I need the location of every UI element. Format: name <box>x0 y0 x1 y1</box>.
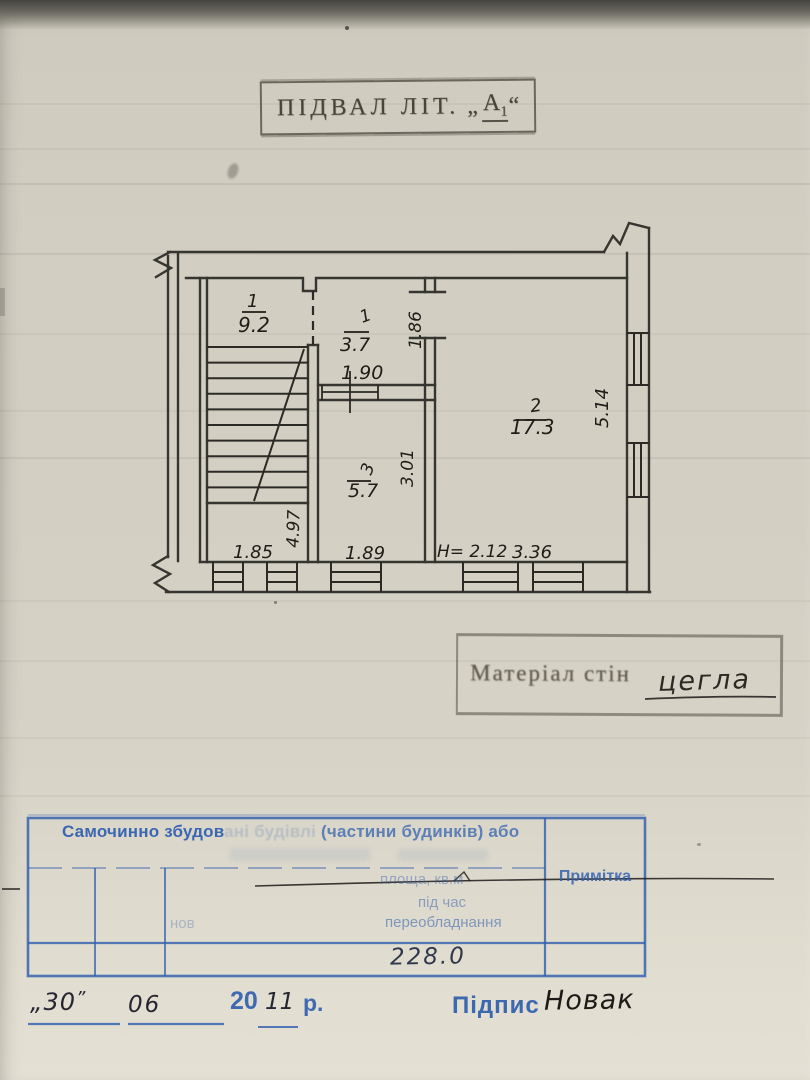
span-mark: „ <box>30 988 43 1016</box>
sub-mark: 1 <box>500 103 507 119</box>
span-mark: (частини будинків) або <box>321 822 519 841</box>
window-symbol <box>627 443 649 497</box>
scanned-document-page: ПІДВАЛ ЛІТ.„А1“ <box>0 0 810 1080</box>
span-mark: 30 <box>43 988 76 1016</box>
pen-marks <box>2 697 776 889</box>
room2-area: 17.3 <box>510 415 555 439</box>
table-col-new-label: нов <box>170 915 195 932</box>
room1a-area: 3.7 <box>340 334 370 356</box>
table-header: Самочинно збудовані будівлі (частини буд… <box>62 822 542 842</box>
date-day: „30” <box>30 988 86 1016</box>
break-symbol-bottom-left <box>153 556 170 592</box>
window-symbol <box>463 562 518 592</box>
room1a-number: 1 <box>357 305 374 327</box>
date-underlines <box>28 1024 298 1027</box>
room1-area: 9.2 <box>238 313 270 337</box>
date-year-prefix: 20 <box>230 987 258 1016</box>
table-col-note-label: Примітка <box>548 868 642 886</box>
room3-area: 5.7 <box>348 480 378 502</box>
dim-4-97: 4.97 <box>283 509 304 548</box>
table-col-area-label: площа, кв.м <box>380 871 463 888</box>
signature-name: Новак <box>544 984 635 1017</box>
path-mark <box>425 278 435 562</box>
date-year-handwritten: 11 <box>265 989 294 1015</box>
dim-1-85: 1.85 <box>233 542 273 563</box>
date-year-suffix: р. <box>303 990 323 1017</box>
dim-1-86: 1.86 <box>406 311 426 349</box>
pen-strikethrough-line <box>255 878 774 886</box>
dim-1-90: 1.90 <box>341 362 383 384</box>
span-mark: Самочинно збудов <box>62 822 224 841</box>
material-stamp: Матеріал стін цегла <box>456 633 783 717</box>
plan-labels: 1 9.2 1 3.7 1.86 1.90 2 17.3 5.14 3 5.7 … <box>233 291 613 564</box>
title-quote-open: „ <box>467 93 482 120</box>
date-month: 06 <box>128 992 161 1018</box>
table-total-value: 228.0 <box>390 943 466 970</box>
plan-windows <box>213 333 649 592</box>
title-stamp: ПІДВАЛ ЛІТ.„А1“ <box>260 79 537 136</box>
room1-number: 1 <box>247 291 258 312</box>
dim-3-01: 3.01 <box>398 449 418 487</box>
dim-ceiling-height: H= 2.12 <box>437 542 507 562</box>
break-symbol-top-right <box>604 223 649 252</box>
title-stamp-text: ПІДВАЛ ЛІТ. <box>277 93 460 122</box>
table-col-during-label: під час <box>418 894 466 911</box>
span-mark: ані будівлі <box>224 822 321 841</box>
window-symbol <box>213 562 243 592</box>
span-mark: ” <box>76 988 86 1009</box>
dim-1-89: 1.89 <box>345 543 385 564</box>
signature-label: Підпис <box>452 992 540 1020</box>
plan-walls <box>153 223 650 592</box>
window-symbol <box>533 562 583 592</box>
dim-3-36: 3.36 <box>512 542 552 563</box>
room3-number: 3 <box>357 461 379 478</box>
material-stamp-label: Матеріал стін <box>470 660 631 687</box>
window-symbol <box>627 333 649 385</box>
building-letter: А1 <box>482 89 509 122</box>
title-quote-close: “ <box>508 92 519 119</box>
material-value-handwritten: цегла <box>658 664 752 698</box>
table-col-reequipment-label: переобладнання <box>385 914 502 931</box>
room2-number: 2 <box>529 395 543 417</box>
window-symbol <box>267 562 297 592</box>
dim-5-14: 5.14 <box>592 388 613 428</box>
window-symbol <box>331 562 381 592</box>
span-mark: А <box>483 90 501 116</box>
path-mark <box>186 278 627 291</box>
plan-stairs <box>207 347 308 501</box>
